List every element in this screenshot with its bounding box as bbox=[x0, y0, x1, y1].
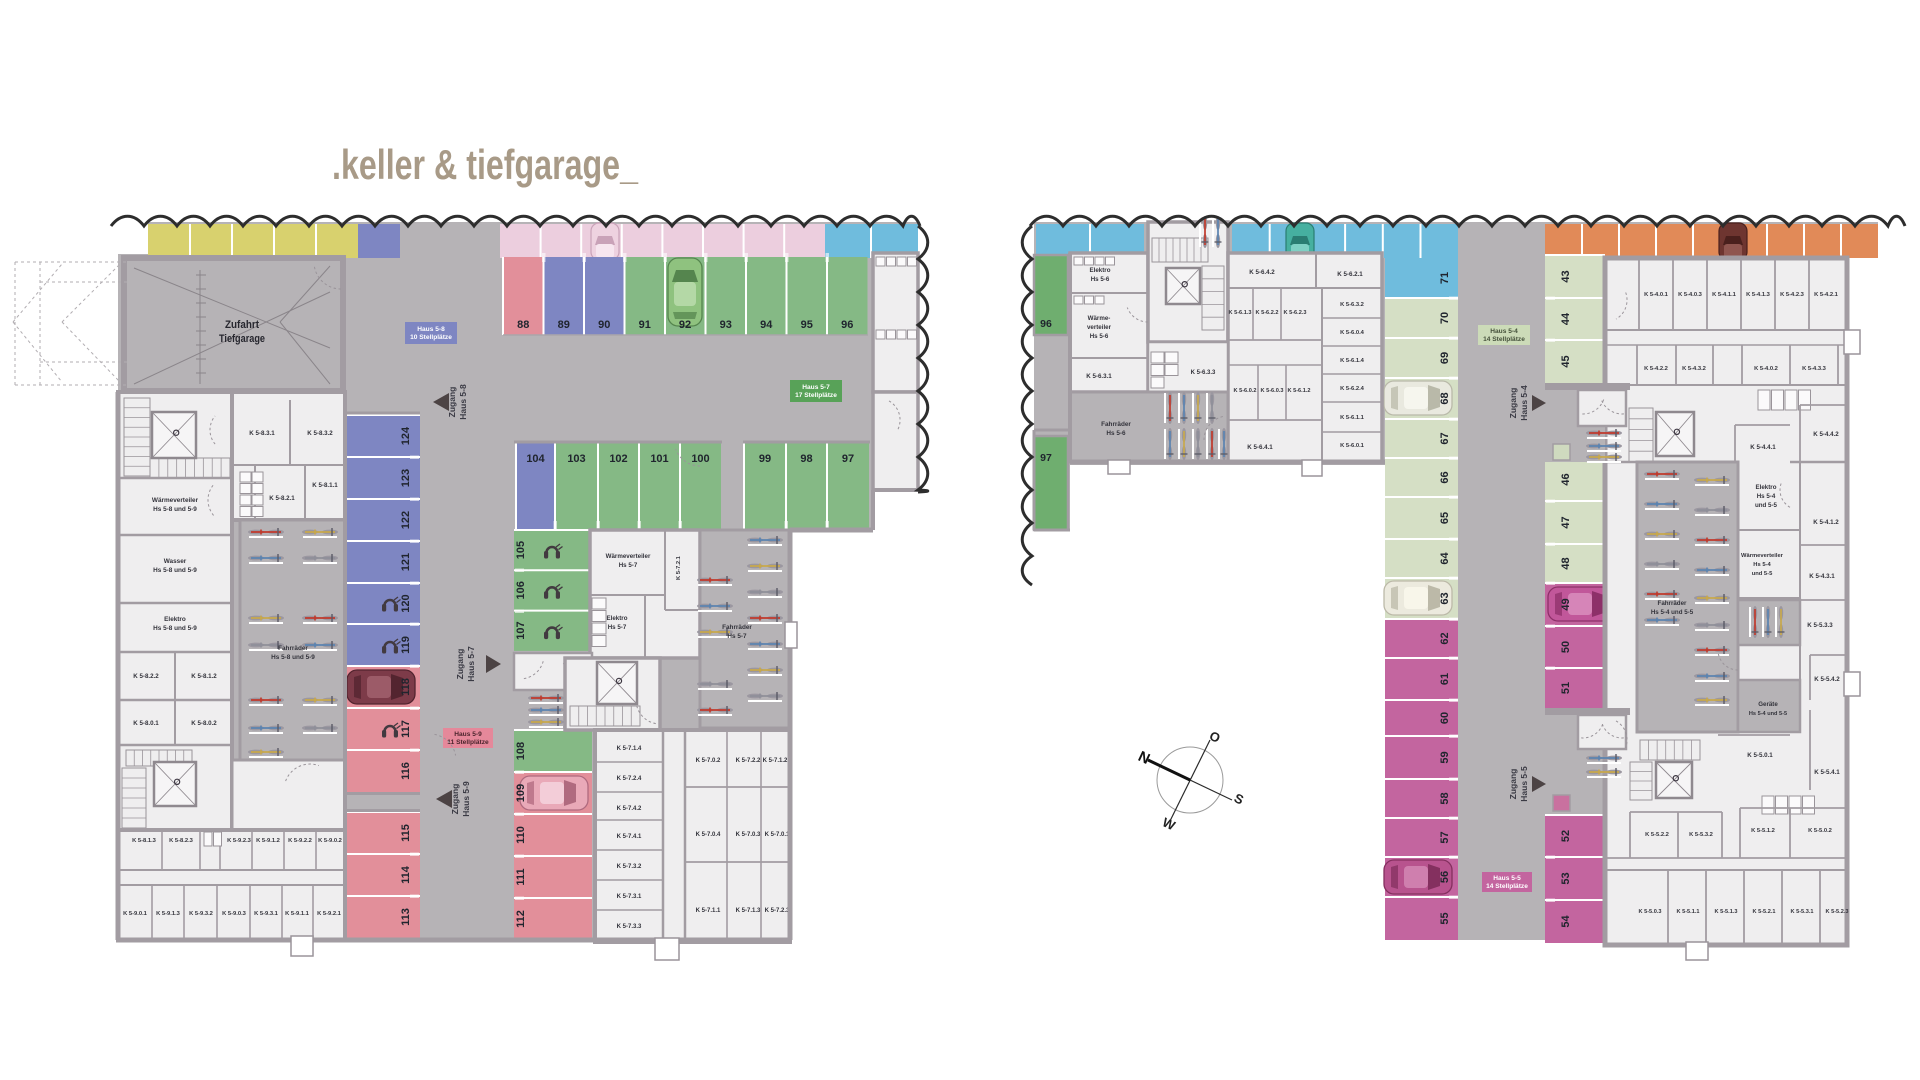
svg-text:70: 70 bbox=[1439, 312, 1451, 324]
svg-text:Zugang: Zugang bbox=[1508, 388, 1518, 419]
svg-text:K 5-8.2.2: K 5-8.2.2 bbox=[133, 673, 159, 680]
svg-text:K 5-9.1.2: K 5-9.1.2 bbox=[256, 838, 280, 844]
svg-text:Hs 5-7: Hs 5-7 bbox=[727, 633, 747, 640]
svg-text:K 5-4.0.3: K 5-4.0.3 bbox=[1678, 292, 1703, 298]
svg-text:68: 68 bbox=[1439, 392, 1451, 404]
svg-text:K 5-5.0.3: K 5-5.0.3 bbox=[1638, 909, 1661, 915]
svg-text:und 5-5: und 5-5 bbox=[1755, 502, 1778, 509]
svg-text:Hs 5-4: Hs 5-4 bbox=[1753, 562, 1771, 568]
svg-text:K 5-5.1.2: K 5-5.1.2 bbox=[1751, 828, 1775, 834]
svg-text:122: 122 bbox=[400, 511, 412, 529]
svg-text:71: 71 bbox=[1439, 272, 1451, 284]
svg-text:59: 59 bbox=[1439, 751, 1451, 763]
svg-text:10 Stellplätze: 10 Stellplätze bbox=[410, 334, 452, 341]
svg-text:K 5-8.2.3: K 5-8.2.3 bbox=[169, 838, 194, 844]
svg-text:60: 60 bbox=[1439, 712, 1451, 724]
svg-text:K 5-9.0.1: K 5-9.0.1 bbox=[123, 911, 148, 917]
svg-text:116: 116 bbox=[400, 762, 412, 780]
svg-text:52: 52 bbox=[1560, 830, 1572, 842]
svg-text:123: 123 bbox=[400, 469, 412, 487]
svg-text:Haus 5-4: Haus 5-4 bbox=[1519, 385, 1529, 421]
svg-text:K 5-6.4.1: K 5-6.4.1 bbox=[1247, 444, 1273, 451]
svg-text:124: 124 bbox=[400, 426, 412, 445]
svg-text:46: 46 bbox=[1560, 473, 1572, 485]
svg-text:98: 98 bbox=[800, 453, 812, 465]
svg-text:Fahrräder: Fahrräder bbox=[722, 624, 752, 631]
svg-text:K 5-5.2.1: K 5-5.2.1 bbox=[1752, 909, 1775, 915]
svg-text:112: 112 bbox=[515, 910, 527, 928]
svg-text:K 5-4.3.1: K 5-4.3.1 bbox=[1809, 573, 1835, 580]
svg-text:K 5-6.1.1: K 5-6.1.1 bbox=[1340, 415, 1365, 421]
svg-text:K 5-5.2.3: K 5-5.2.3 bbox=[1825, 909, 1848, 915]
svg-text:92: 92 bbox=[679, 319, 691, 331]
svg-text:K 5-4.1.2: K 5-4.1.2 bbox=[1813, 519, 1839, 526]
svg-text:K 5-9.3.2: K 5-9.3.2 bbox=[189, 911, 213, 917]
svg-text:Fahrräder: Fahrräder bbox=[278, 645, 308, 652]
svg-text:Haus 5-8: Haus 5-8 bbox=[458, 384, 468, 420]
svg-text:Haus 5-9: Haus 5-9 bbox=[454, 731, 482, 738]
svg-text:K 5-5.0.2: K 5-5.0.2 bbox=[1808, 828, 1832, 834]
svg-text:K 5-9.0.2: K 5-9.0.2 bbox=[318, 838, 342, 844]
svg-text:und 5-5: und 5-5 bbox=[1752, 571, 1773, 577]
svg-text:K 5-7.1.4: K 5-7.1.4 bbox=[617, 746, 642, 752]
svg-text:66: 66 bbox=[1439, 471, 1451, 483]
svg-text:63: 63 bbox=[1439, 592, 1451, 604]
svg-text:91: 91 bbox=[639, 319, 651, 331]
svg-text:53: 53 bbox=[1560, 872, 1572, 884]
svg-text:verteiler: verteiler bbox=[1087, 324, 1112, 331]
svg-text:Wasser: Wasser bbox=[164, 558, 187, 565]
svg-text:111: 111 bbox=[515, 868, 527, 885]
svg-text:Haus 5-9: Haus 5-9 bbox=[461, 781, 471, 817]
svg-text:109: 109 bbox=[515, 784, 527, 802]
svg-text:K 5-6.4.2: K 5-6.4.2 bbox=[1249, 269, 1275, 276]
svg-text:88: 88 bbox=[517, 319, 529, 331]
svg-text:114: 114 bbox=[400, 865, 412, 884]
svg-text:Haus 5-8: Haus 5-8 bbox=[417, 326, 445, 333]
svg-text:61: 61 bbox=[1439, 673, 1451, 685]
svg-text:K 5-4.1.1: K 5-4.1.1 bbox=[1712, 292, 1737, 298]
svg-text:105: 105 bbox=[515, 541, 527, 559]
svg-text:Elektro: Elektro bbox=[1090, 267, 1111, 274]
svg-text:Hs 5-8 und 5-9: Hs 5-8 und 5-9 bbox=[153, 625, 197, 632]
svg-text:K 5-7.0.3: K 5-7.0.3 bbox=[736, 832, 761, 838]
svg-text:K 5-9.1.1: K 5-9.1.1 bbox=[285, 911, 310, 917]
svg-text:K 5-4.2.3: K 5-4.2.3 bbox=[1780, 292, 1805, 298]
svg-text:K 5-7.4.2: K 5-7.4.2 bbox=[617, 806, 642, 812]
svg-text:K 5-7.2.4: K 5-7.2.4 bbox=[617, 776, 642, 782]
svg-text:51: 51 bbox=[1560, 682, 1572, 694]
svg-text:K 5-6.1.3: K 5-6.1.3 bbox=[1228, 310, 1251, 316]
svg-text:Hs 5-8 und 5-9: Hs 5-8 und 5-9 bbox=[153, 567, 197, 574]
svg-text:K 5-7.1.2: K 5-7.1.2 bbox=[763, 758, 788, 764]
svg-text:K 5-7.2.2: K 5-7.2.2 bbox=[736, 758, 761, 764]
svg-text:K 5-6.0.1: K 5-6.0.1 bbox=[1340, 443, 1365, 449]
svg-text:47: 47 bbox=[1560, 516, 1572, 528]
svg-text:K 5-5.0.1: K 5-5.0.1 bbox=[1747, 752, 1773, 759]
svg-text:K 5-5.4.2: K 5-5.4.2 bbox=[1814, 676, 1840, 683]
svg-text:K 5-8.1.1: K 5-8.1.1 bbox=[312, 482, 338, 489]
svg-text:K 5-9.2.1: K 5-9.2.1 bbox=[317, 911, 342, 917]
svg-text:Hs 5-6: Hs 5-6 bbox=[1091, 276, 1110, 283]
svg-text:120: 120 bbox=[400, 594, 412, 612]
svg-text:Zugang: Zugang bbox=[447, 387, 457, 418]
svg-text:104: 104 bbox=[526, 453, 545, 465]
svg-text:99: 99 bbox=[759, 453, 771, 465]
svg-text:K 5-5.1.3: K 5-5.1.3 bbox=[1714, 909, 1737, 915]
svg-text:Elektro: Elektro bbox=[164, 616, 186, 623]
svg-text:Fahrräder: Fahrräder bbox=[1658, 600, 1687, 607]
svg-text:43: 43 bbox=[1560, 270, 1572, 282]
svg-text:45: 45 bbox=[1560, 355, 1572, 367]
svg-text:14 Stellplätze: 14 Stellplätze bbox=[1486, 883, 1528, 890]
svg-text:Hs 5-8 und 5-9: Hs 5-8 und 5-9 bbox=[153, 506, 197, 513]
svg-text:Zugang: Zugang bbox=[455, 649, 465, 680]
svg-text:K 5-5.3.1: K 5-5.3.1 bbox=[1790, 909, 1813, 915]
svg-text:K 5-7.2.1: K 5-7.2.1 bbox=[676, 555, 682, 580]
svg-text:Hs 5-6: Hs 5-6 bbox=[1090, 333, 1109, 340]
svg-text:K 5-7.0.4: K 5-7.0.4 bbox=[696, 832, 721, 838]
svg-text:K 5-8.3.1: K 5-8.3.1 bbox=[249, 430, 275, 437]
svg-text:K 5-6.0.4: K 5-6.0.4 bbox=[1340, 330, 1365, 336]
svg-text:65: 65 bbox=[1439, 512, 1451, 524]
svg-text:Hs 5-8 und 5-9: Hs 5-8 und 5-9 bbox=[271, 654, 315, 661]
svg-text:119: 119 bbox=[400, 636, 412, 654]
svg-text:K 5-6.2.4: K 5-6.2.4 bbox=[1340, 386, 1365, 392]
svg-text:117: 117 bbox=[400, 720, 412, 738]
svg-text:Wärmeverteiler: Wärmeverteiler bbox=[606, 553, 651, 560]
svg-text:89: 89 bbox=[558, 319, 570, 331]
svg-text:K 5-4.2.1: K 5-4.2.1 bbox=[1814, 292, 1839, 298]
svg-text:100: 100 bbox=[691, 453, 709, 465]
svg-text:93: 93 bbox=[720, 319, 732, 331]
svg-text:Haus 5-5: Haus 5-5 bbox=[1493, 875, 1521, 882]
svg-text:Zufahrt: Zufahrt bbox=[225, 319, 259, 331]
svg-text:K 5-8.2.1: K 5-8.2.1 bbox=[269, 495, 295, 502]
svg-text:55: 55 bbox=[1439, 912, 1451, 924]
svg-text:115: 115 bbox=[400, 824, 412, 842]
svg-text:K 5-4.0.2: K 5-4.0.2 bbox=[1754, 366, 1778, 372]
svg-text:97: 97 bbox=[842, 453, 854, 465]
svg-text:K 5-4.3.2: K 5-4.3.2 bbox=[1682, 366, 1706, 372]
svg-text:.keller & tiefgarage_: .keller & tiefgarage_ bbox=[332, 141, 638, 188]
svg-text:K 5-7.2.3: K 5-7.2.3 bbox=[765, 908, 790, 914]
svg-text:90: 90 bbox=[598, 319, 610, 331]
svg-text:102: 102 bbox=[609, 453, 627, 465]
svg-text:K 5-8.1.2: K 5-8.1.2 bbox=[191, 673, 217, 680]
svg-text:106: 106 bbox=[515, 581, 527, 599]
svg-text:K 5-4.2.2: K 5-4.2.2 bbox=[1644, 366, 1668, 372]
svg-text:K 5-7.0.2: K 5-7.0.2 bbox=[696, 758, 721, 764]
svg-text:107: 107 bbox=[515, 621, 527, 639]
svg-text:K 5-9.2.2: K 5-9.2.2 bbox=[288, 838, 312, 844]
svg-text:Haus 5-7: Haus 5-7 bbox=[466, 646, 476, 682]
svg-text:K 5-4.0.1: K 5-4.0.1 bbox=[1644, 292, 1669, 298]
svg-text:K 5-8.0.1: K 5-8.0.1 bbox=[133, 720, 159, 727]
svg-text:K 5-5.3.3: K 5-5.3.3 bbox=[1807, 622, 1833, 629]
svg-text:K 5-4.4.1: K 5-4.4.1 bbox=[1750, 444, 1776, 451]
svg-text:Haus 5-4: Haus 5-4 bbox=[1490, 328, 1518, 335]
svg-text:K 5-6.3.3: K 5-6.3.3 bbox=[1191, 370, 1216, 376]
svg-text:K 5-9.3.1: K 5-9.3.1 bbox=[254, 911, 279, 917]
svg-text:K 5-6.3.1: K 5-6.3.1 bbox=[1086, 373, 1112, 380]
svg-text:67: 67 bbox=[1439, 432, 1451, 444]
svg-text:56: 56 bbox=[1439, 871, 1451, 883]
svg-text:54: 54 bbox=[1560, 915, 1572, 928]
svg-text:62: 62 bbox=[1439, 632, 1451, 644]
svg-text:K 5-7.1.1: K 5-7.1.1 bbox=[696, 908, 721, 914]
svg-text:K 5-7.1.3: K 5-7.1.3 bbox=[736, 908, 761, 914]
svg-text:K 5-8.3.2: K 5-8.3.2 bbox=[307, 430, 333, 437]
svg-text:Hs 5-4: Hs 5-4 bbox=[1757, 493, 1776, 500]
svg-text:Geräte: Geräte bbox=[1758, 701, 1778, 708]
svg-text:Tiefgarage: Tiefgarage bbox=[219, 333, 265, 345]
svg-text:K 5-8.1.3: K 5-8.1.3 bbox=[132, 838, 157, 844]
svg-text:113: 113 bbox=[400, 908, 412, 926]
svg-text:K 5-4.4.2: K 5-4.4.2 bbox=[1813, 431, 1839, 438]
svg-text:K 5-7.3.3: K 5-7.3.3 bbox=[617, 924, 642, 930]
svg-text:Zugang: Zugang bbox=[1508, 769, 1518, 800]
svg-text:50: 50 bbox=[1560, 641, 1572, 653]
svg-text:108: 108 bbox=[515, 742, 527, 760]
svg-text:K 5-6.2.3: K 5-6.2.3 bbox=[1283, 310, 1306, 316]
svg-text:K 5-5.3.2: K 5-5.3.2 bbox=[1689, 832, 1713, 838]
svg-text:K 5-6.3.2: K 5-6.3.2 bbox=[1340, 302, 1364, 308]
svg-text:K 5-4.1.3: K 5-4.1.3 bbox=[1746, 292, 1771, 298]
svg-text:11 Stellplätze: 11 Stellplätze bbox=[447, 739, 489, 746]
svg-text:K 5-6.0.3: K 5-6.0.3 bbox=[1260, 388, 1283, 394]
svg-text:K 5-6.0.2: K 5-6.0.2 bbox=[1233, 388, 1256, 394]
svg-text:Hs 5-4 und 5-5: Hs 5-4 und 5-5 bbox=[1651, 609, 1694, 616]
svg-text:K 5-5.2.2: K 5-5.2.2 bbox=[1645, 832, 1669, 838]
svg-text:17 Stellplätze: 17 Stellplätze bbox=[795, 392, 837, 399]
svg-text:K 5-6.1.4: K 5-6.1.4 bbox=[1340, 358, 1365, 364]
svg-text:121: 121 bbox=[400, 553, 412, 571]
svg-text:Hs 5-6: Hs 5-6 bbox=[1106, 430, 1126, 437]
svg-text:Haus 5-5: Haus 5-5 bbox=[1519, 766, 1529, 802]
svg-text:K 5-7.3.2: K 5-7.3.2 bbox=[617, 864, 642, 870]
svg-text:K 5-6.2.2: K 5-6.2.2 bbox=[1255, 310, 1278, 316]
svg-text:110: 110 bbox=[515, 826, 527, 844]
svg-text:95: 95 bbox=[801, 319, 813, 331]
svg-text:Wärmeverteiler: Wärmeverteiler bbox=[1741, 553, 1784, 559]
svg-text:K 5-7.4.1: K 5-7.4.1 bbox=[617, 834, 642, 840]
svg-text:K 5-6.2.1: K 5-6.2.1 bbox=[1337, 271, 1363, 278]
svg-text:57: 57 bbox=[1439, 831, 1451, 843]
svg-text:94: 94 bbox=[760, 319, 773, 331]
svg-text:Haus 5-7: Haus 5-7 bbox=[802, 384, 830, 391]
svg-text:64: 64 bbox=[1439, 552, 1451, 565]
svg-text:Hs 5-7: Hs 5-7 bbox=[608, 624, 627, 631]
svg-text:K 5-9.1.3: K 5-9.1.3 bbox=[156, 911, 181, 917]
svg-text:118: 118 bbox=[400, 678, 412, 696]
svg-text:Hs 5-7: Hs 5-7 bbox=[619, 562, 638, 569]
svg-text:K 5-7.0.1: K 5-7.0.1 bbox=[765, 832, 790, 838]
svg-text:Wärmeverteiler: Wärmeverteiler bbox=[152, 497, 199, 504]
svg-text:K 5-6.1.2: K 5-6.1.2 bbox=[1287, 388, 1310, 394]
svg-text:K 5-7.3.1: K 5-7.3.1 bbox=[617, 894, 642, 900]
svg-text:96: 96 bbox=[1040, 318, 1052, 330]
svg-text:Zugang: Zugang bbox=[450, 784, 460, 815]
svg-text:101: 101 bbox=[650, 453, 668, 465]
svg-text:97: 97 bbox=[1040, 452, 1052, 464]
svg-text:103: 103 bbox=[567, 453, 585, 465]
svg-text:K 5-5.4.1: K 5-5.4.1 bbox=[1814, 769, 1840, 776]
svg-text:K 5-8.0.2: K 5-8.0.2 bbox=[191, 720, 217, 727]
svg-text:Fahrräder: Fahrräder bbox=[1101, 421, 1131, 428]
svg-text:69: 69 bbox=[1439, 352, 1451, 364]
svg-text:Elektro: Elektro bbox=[607, 615, 628, 622]
svg-text:58: 58 bbox=[1439, 792, 1451, 804]
svg-text:K 5-5.1.1: K 5-5.1.1 bbox=[1676, 909, 1699, 915]
svg-text:96: 96 bbox=[841, 319, 853, 331]
svg-text:49: 49 bbox=[1560, 598, 1572, 610]
svg-text:K 5-4.3.3: K 5-4.3.3 bbox=[1802, 366, 1827, 372]
svg-text:Elektro: Elektro bbox=[1756, 484, 1777, 491]
svg-text:48: 48 bbox=[1560, 557, 1572, 569]
svg-text:Wärme-: Wärme- bbox=[1088, 315, 1111, 322]
svg-text:44: 44 bbox=[1560, 312, 1572, 325]
svg-text:Hs 5-4 und 5-5: Hs 5-4 und 5-5 bbox=[1749, 711, 1787, 717]
svg-text:14 Stellplätze: 14 Stellplätze bbox=[1483, 336, 1525, 343]
svg-text:K 5-9.0.3: K 5-9.0.3 bbox=[222, 911, 247, 917]
svg-text:K 5-9.2.3: K 5-9.2.3 bbox=[227, 838, 252, 844]
